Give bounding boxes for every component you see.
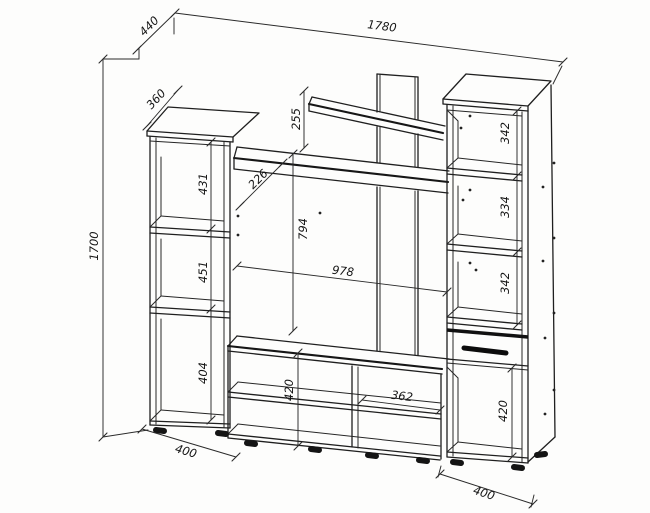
dim-stand-compartment: 362 (390, 388, 413, 405)
drawer-handle (464, 348, 506, 353)
dim-right-section-3: 342 (498, 272, 512, 294)
dim-left-section-1: 431 (196, 173, 210, 195)
dim-depth-overall: 440 (136, 13, 161, 38)
dim-left-section-2: 451 (196, 261, 210, 283)
dim-height-overall: 1700 (87, 231, 101, 260)
dim-stand-height: 420 (282, 379, 296, 401)
dim-left-section-3: 404 (196, 362, 210, 384)
dim-right-section-1: 342 (498, 122, 512, 144)
dim-right-width: 400 (471, 483, 496, 503)
dim-right-section-2: 334 (498, 196, 512, 218)
dim-right-lower: 420 (496, 400, 510, 422)
feet (156, 430, 545, 468)
dim-left-depth: 360 (143, 86, 168, 112)
drawing-page: 440 1780 1700 360 431 451 404 400 255 22… (0, 0, 650, 513)
tv-stand (228, 336, 449, 460)
dim-left-width: 400 (174, 441, 199, 461)
furniture-drawing: 440 1780 1700 360 431 451 404 400 255 22… (0, 0, 650, 513)
fitting-dots (237, 115, 556, 416)
dim-width-overall: 1780 (367, 17, 398, 34)
dim-tv-zone-height: 794 (296, 218, 310, 240)
dimension-lines (99, 9, 567, 508)
dimension-labels: 440 1780 1700 360 431 451 404 400 255 22… (87, 13, 512, 503)
dim-tv-zone-width: 978 (331, 263, 354, 280)
dim-shelf-offset: 255 (289, 108, 303, 130)
wall-shelf-band (234, 147, 449, 193)
